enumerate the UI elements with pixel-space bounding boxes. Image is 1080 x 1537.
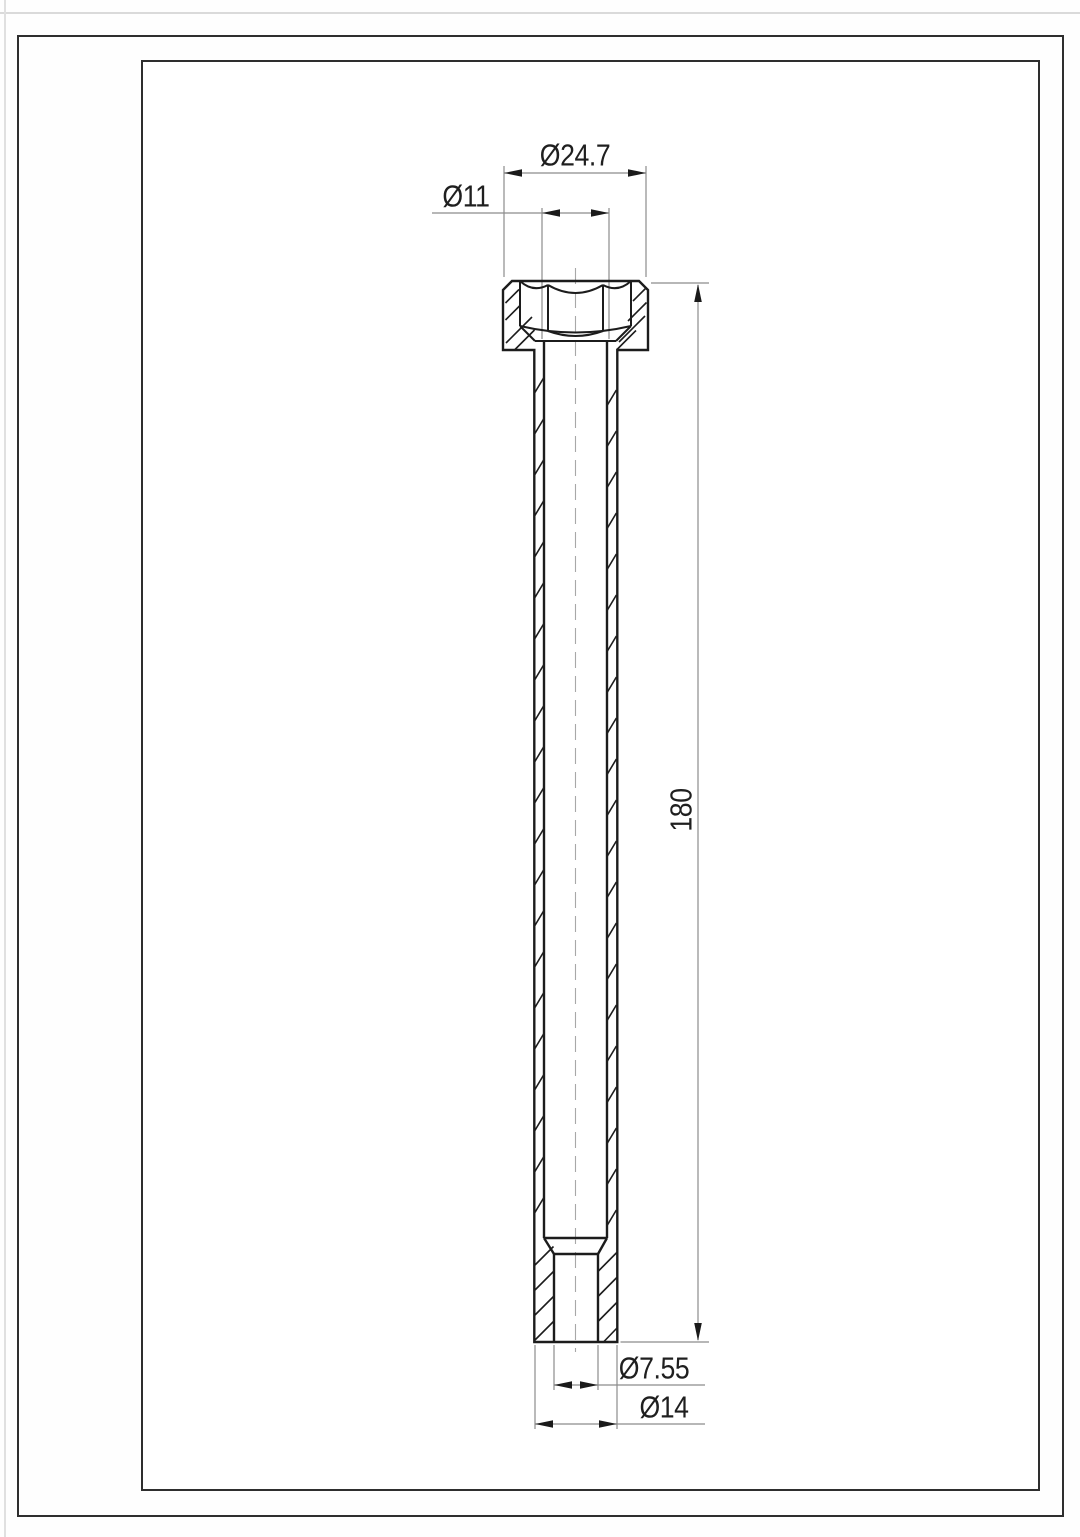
dim-label-tip-outer-diameter: Ø14	[639, 1392, 688, 1423]
dim-label-bore-diameter: Ø11	[442, 181, 489, 212]
head-socket-detail	[520, 281, 631, 341]
dim-label-overall-length: 180	[666, 788, 697, 831]
drawing-page: Ø24.7 Ø11 180 Ø7.55 Ø14	[0, 0, 1080, 1537]
dim-label-head-diameter: Ø24.7	[540, 140, 610, 171]
dim-label-tip-bore-diameter: Ø7.55	[619, 1353, 689, 1384]
part-section-drawing	[0, 0, 1080, 1537]
